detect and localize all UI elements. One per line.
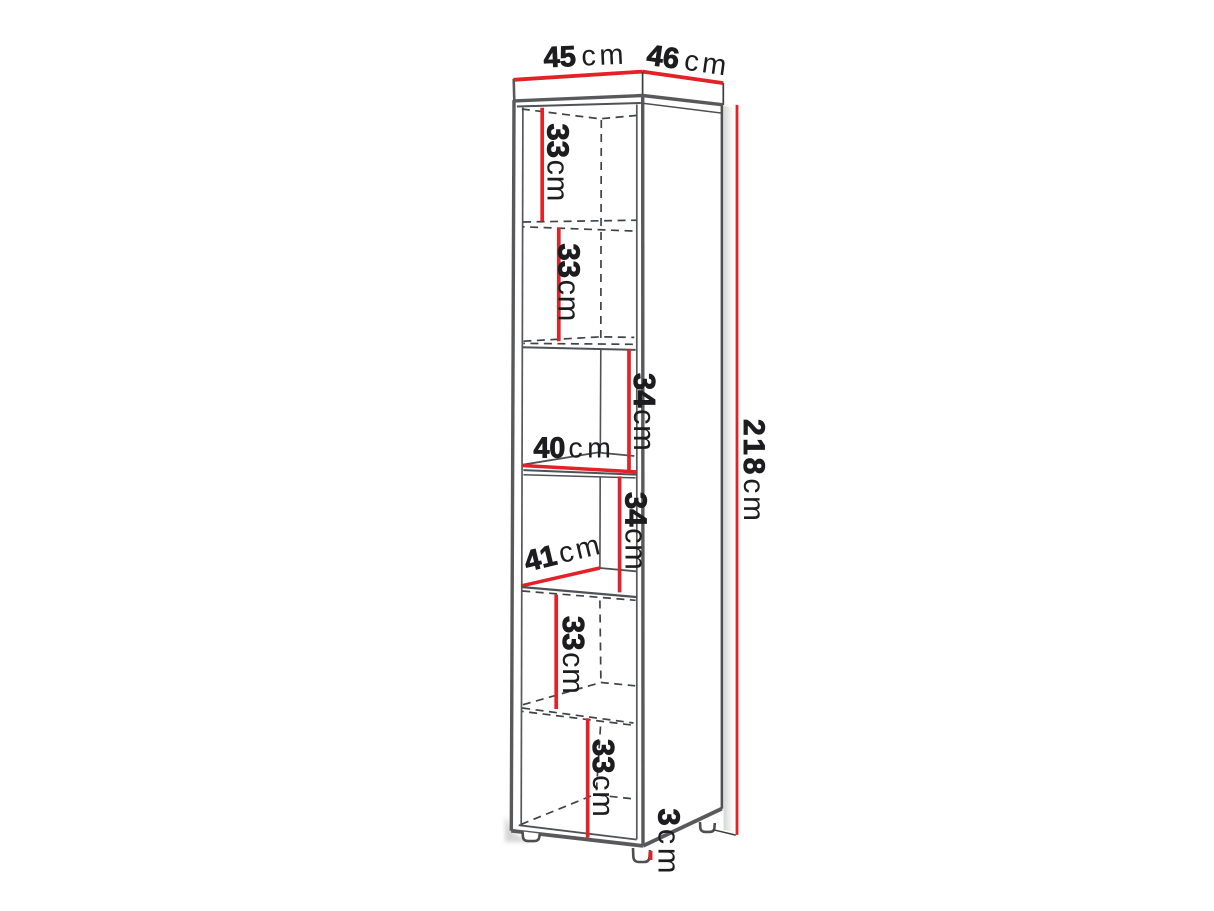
svg-text:33cm: 33cm — [552, 244, 587, 323]
svg-text:45cm: 45cm — [543, 39, 628, 75]
svg-text:46cm: 46cm — [645, 40, 732, 83]
svg-text:33cm: 33cm — [541, 124, 576, 203]
svg-text:3cm: 3cm — [651, 809, 686, 878]
svg-text:34cm: 34cm — [627, 373, 662, 452]
svg-text:34cm: 34cm — [619, 492, 654, 571]
svg-text:40cm: 40cm — [534, 432, 616, 464]
svg-text:33cm: 33cm — [586, 739, 621, 818]
svg-text:33cm: 33cm — [556, 616, 591, 695]
svg-text:218cm: 218cm — [737, 419, 770, 524]
